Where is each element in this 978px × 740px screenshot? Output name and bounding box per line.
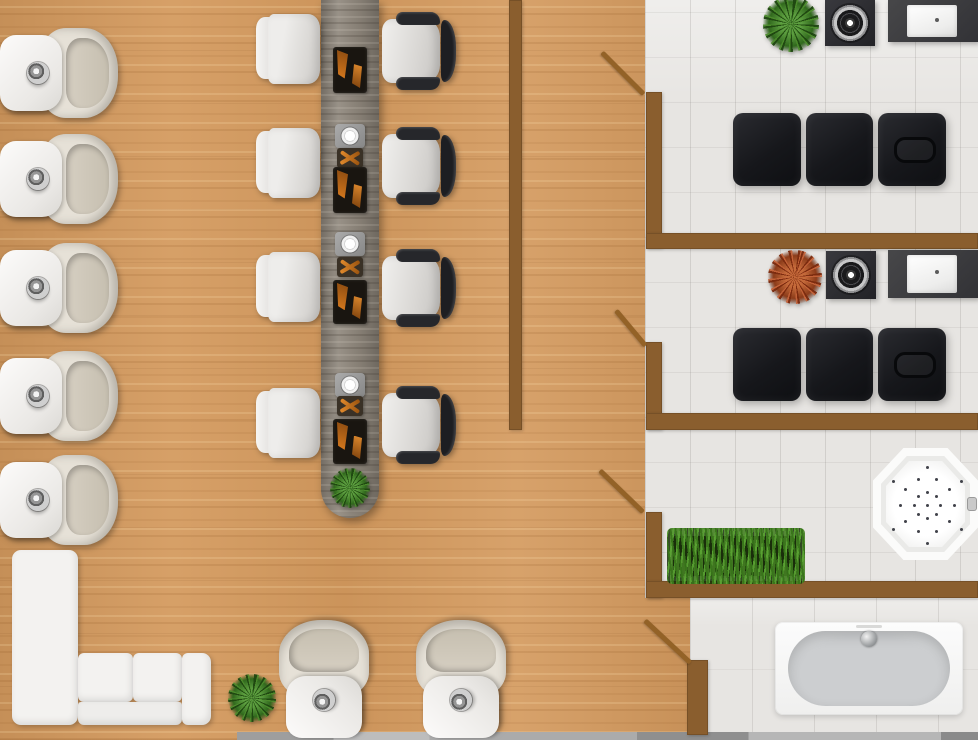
pedicure-chair-3[interactable] [0,243,118,333]
cushion-2 [806,113,874,186]
side-chair-3[interactable] [256,252,320,322]
chrome-fixture-icon [27,489,49,511]
chair-backrest [441,20,456,82]
office-chair-4[interactable] [380,386,456,464]
chair-seat [382,256,440,320]
station-tools-9[interactable] [337,396,363,416]
office-chair-3[interactable] [380,249,456,327]
room1-burner[interactable] [825,0,875,46]
sofa-back-cushion [133,653,182,702]
station-bowl-8[interactable] [335,373,365,397]
station-bowl-5[interactable] [335,232,365,256]
cushion-3 [878,113,946,186]
sink-drain-icon [935,270,939,274]
cushion-1 [733,328,801,401]
jacuzzi-jets [926,504,929,507]
station-tray-7[interactable] [333,280,367,324]
side-chair-1[interactable] [256,14,320,84]
wall-bathroom-left[interactable] [687,660,708,735]
bathtub[interactable] [775,622,963,715]
pedicure-chair-4[interactable] [0,351,118,441]
chrome-fixture-icon [450,689,472,711]
wall-room1-left[interactable] [646,92,662,248]
chair-backrest [441,257,456,319]
room2-plant[interactable] [768,250,822,304]
chair-armrest-top [396,386,440,399]
chair-seat [382,134,440,198]
cushion-3 [878,328,946,401]
chair-backrest [441,135,456,197]
pedicure-chair-7[interactable] [416,620,506,738]
chair-seat [382,19,440,83]
sink-basin [907,255,957,293]
grass-planter[interactable] [672,536,800,576]
jacuzzi[interactable] [873,448,978,560]
sink-drain-icon [935,18,939,22]
chair-backrest [441,394,456,456]
chrome-fixture-icon [27,385,49,407]
tub-drain-icon [861,631,877,647]
sofa-back-cushion [78,653,133,702]
tub-overflow [856,625,882,628]
chair-seat [268,252,320,322]
massage-table-1[interactable] [733,113,946,186]
massage-table-2[interactable] [733,328,946,401]
chrome-fixture-icon [27,277,49,299]
sofa-seat [78,702,182,725]
chair-armrest-top [396,12,440,25]
pedicure-chair-6[interactable] [279,620,369,738]
station-bowl-2[interactable] [335,124,365,148]
chair-armrest-top [396,127,440,140]
room1-sink-counter[interactable] [888,0,978,42]
chair-seat [268,14,320,84]
chair-armrest-top [396,249,440,262]
station-tools-6[interactable] [337,257,363,277]
station-tray-4[interactable] [333,167,367,213]
pedicure-chair-1[interactable] [0,28,118,118]
pedicure-chair-2[interactable] [0,134,118,224]
pedicure-chair-5[interactable] [0,455,118,545]
station-tray-1[interactable] [333,47,367,93]
office-chair-2[interactable] [380,127,456,205]
office-chair-1[interactable] [380,12,456,90]
station-tools-3[interactable] [337,148,363,168]
chair-armrest-bottom [396,314,440,327]
chair-armrest-bottom [396,192,440,205]
room2-sink-counter[interactable] [888,250,978,298]
chrome-fixture-icon [313,689,335,711]
chrome-fixture-icon [27,168,49,190]
sink-basin [907,5,957,37]
sofa[interactable] [9,548,212,726]
room2-burner[interactable] [826,251,876,299]
salon-floor-plan [0,0,978,740]
jacuzzi-control [968,498,976,510]
cushion-2 [806,328,874,401]
sofa-armrest [182,653,211,725]
chair-armrest-bottom [396,451,440,464]
manicure-table[interactable] [321,0,379,518]
sofa-chaise [12,550,78,725]
sofa-plant[interactable] [228,674,276,722]
table-plant[interactable] [330,468,370,508]
chair-seat [268,388,320,458]
chair-armrest-bottom [396,77,440,90]
side-chair-2[interactable] [256,128,320,198]
wall-room1-room2[interactable] [646,233,978,249]
chrome-fixture-icon [27,62,49,84]
chair-seat [268,128,320,198]
side-chair-4[interactable] [256,388,320,458]
wall-room2-room3[interactable] [646,413,978,430]
station-tray-10[interactable] [333,419,367,464]
cushion-1 [733,113,801,186]
chair-seat [382,393,440,457]
wall-center-divider[interactable] [509,0,522,430]
